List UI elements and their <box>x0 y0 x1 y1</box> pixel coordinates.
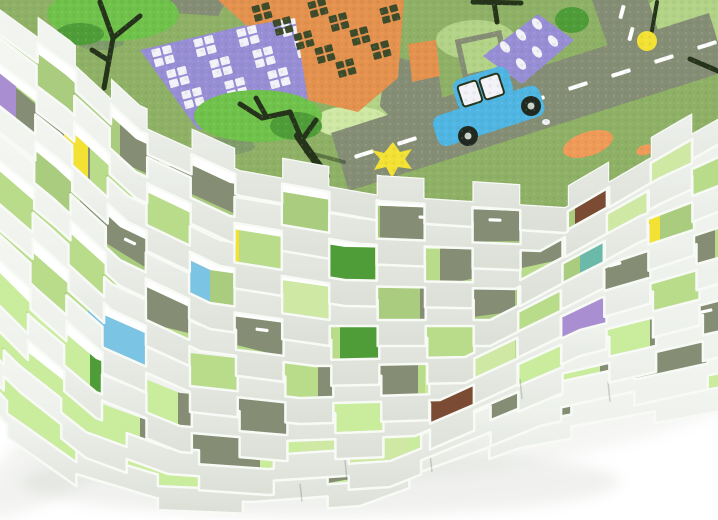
road-dash-mark <box>488 218 501 222</box>
product-photo <box>0 0 718 520</box>
play-mat-stack-photo <box>0 0 718 520</box>
